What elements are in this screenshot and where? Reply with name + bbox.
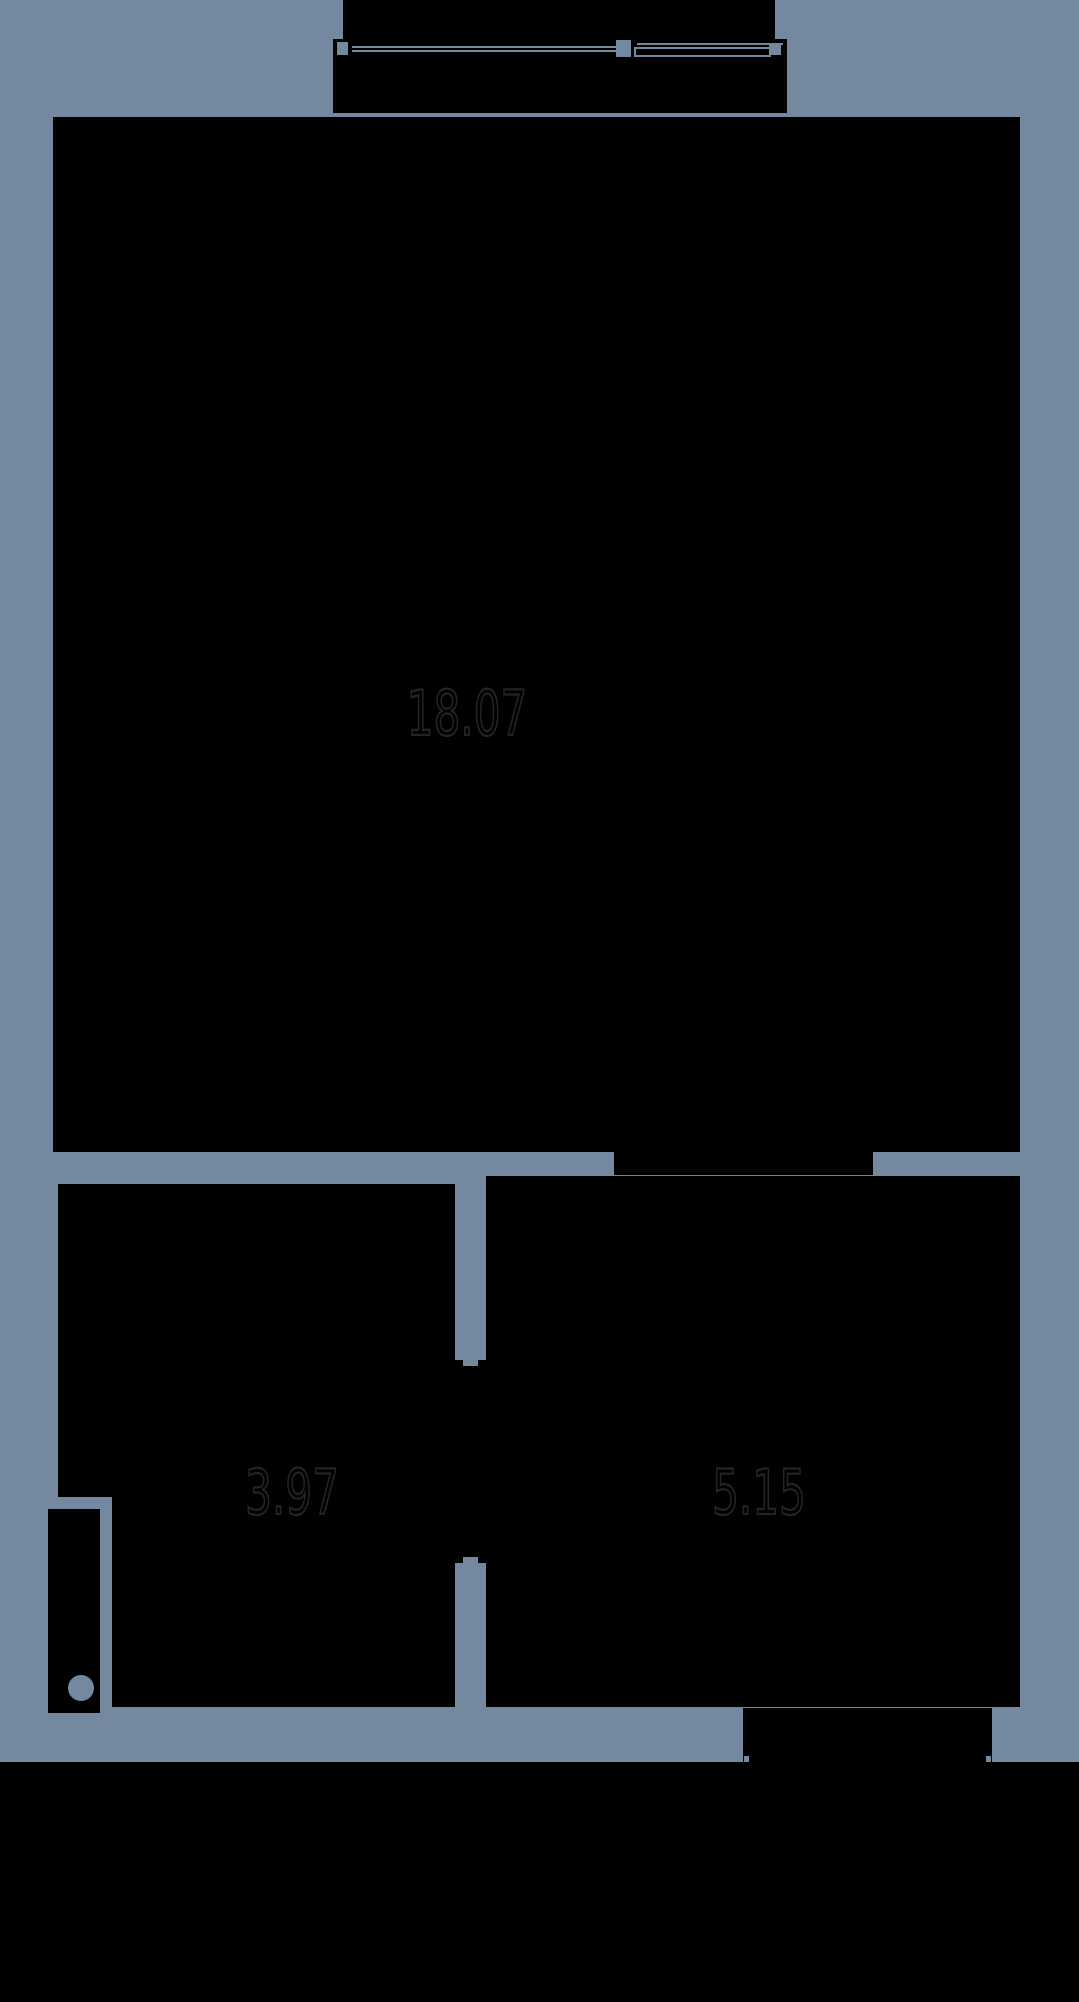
room-bottom-left <box>58 1184 455 1707</box>
window-sliding-pane <box>634 47 771 57</box>
room-main-area-label: 18.07 <box>407 683 528 745</box>
door-opening-between-rooms <box>455 1366 486 1557</box>
door-jamb-mark <box>478 1556 486 1563</box>
wall-opening-main-room <box>614 1152 873 1175</box>
room-main <box>53 117 1020 1152</box>
door-jamb-mark <box>455 1556 463 1563</box>
window-frame-left-cap <box>337 42 348 55</box>
window-frame-right-cap <box>769 43 781 55</box>
door-jamb-mark <box>478 1360 486 1367</box>
floor-plan-page: { "colors": { "background": "#74889F", "… <box>0 0 1079 2002</box>
room-bottom-right-area-label: 5.15 <box>712 1462 806 1524</box>
room-bottom-left-area-label: 3.97 <box>245 1462 339 1524</box>
pipe-circle-icon <box>68 1675 94 1701</box>
window-glass-line <box>637 43 783 45</box>
window-mullion <box>616 40 631 57</box>
door-jamb-mark <box>455 1360 463 1367</box>
bottom-black-band <box>0 1762 1079 2002</box>
window-glass-line <box>352 50 618 52</box>
room-bottom-right <box>486 1176 1020 1707</box>
entrance-door-opening <box>743 1708 992 1765</box>
balcony-slab <box>333 60 787 113</box>
balcony-top-slab <box>343 0 775 39</box>
window-glass-line <box>352 46 618 48</box>
